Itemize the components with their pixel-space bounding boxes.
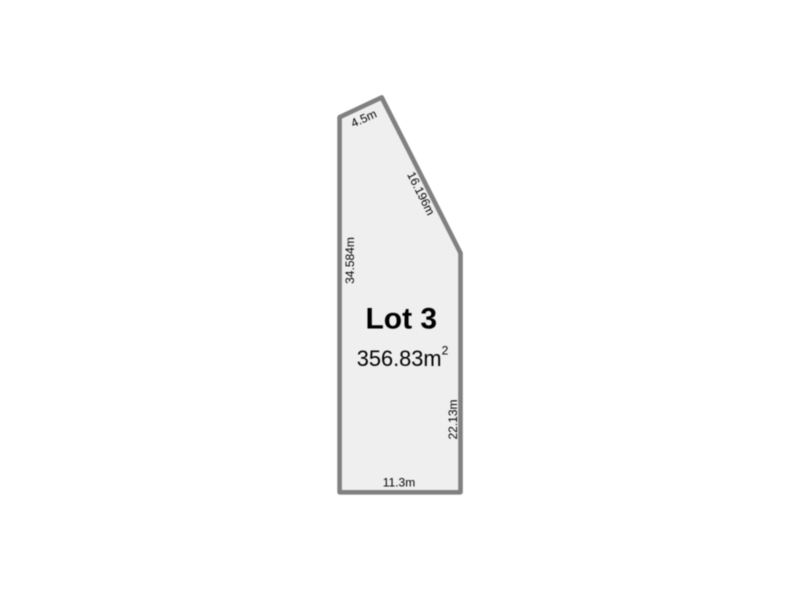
svg-text:34.584m: 34.584m <box>343 237 357 284</box>
svg-text:356.83m2: 356.83m2 <box>357 344 449 371</box>
svg-text:11.3m: 11.3m <box>383 476 415 490</box>
svg-text:22.13m: 22.13m <box>446 399 460 439</box>
svg-text:Lot 3: Lot 3 <box>365 303 437 336</box>
